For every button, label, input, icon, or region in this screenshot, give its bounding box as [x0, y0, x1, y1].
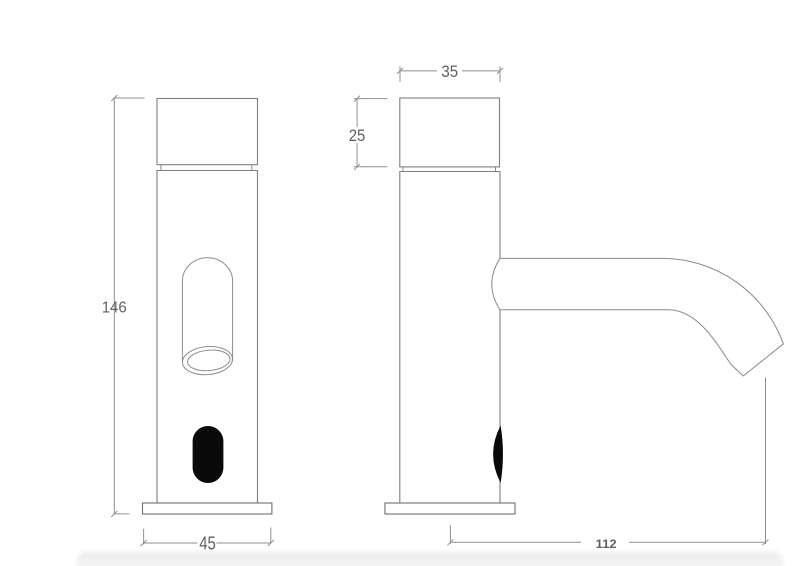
svg-text:25: 25 — [349, 127, 366, 145]
svg-text:35: 35 — [441, 63, 458, 81]
svg-text:146: 146 — [102, 299, 127, 316]
svg-text:45: 45 — [199, 533, 216, 554]
svg-text:112: 112 — [596, 537, 617, 551]
